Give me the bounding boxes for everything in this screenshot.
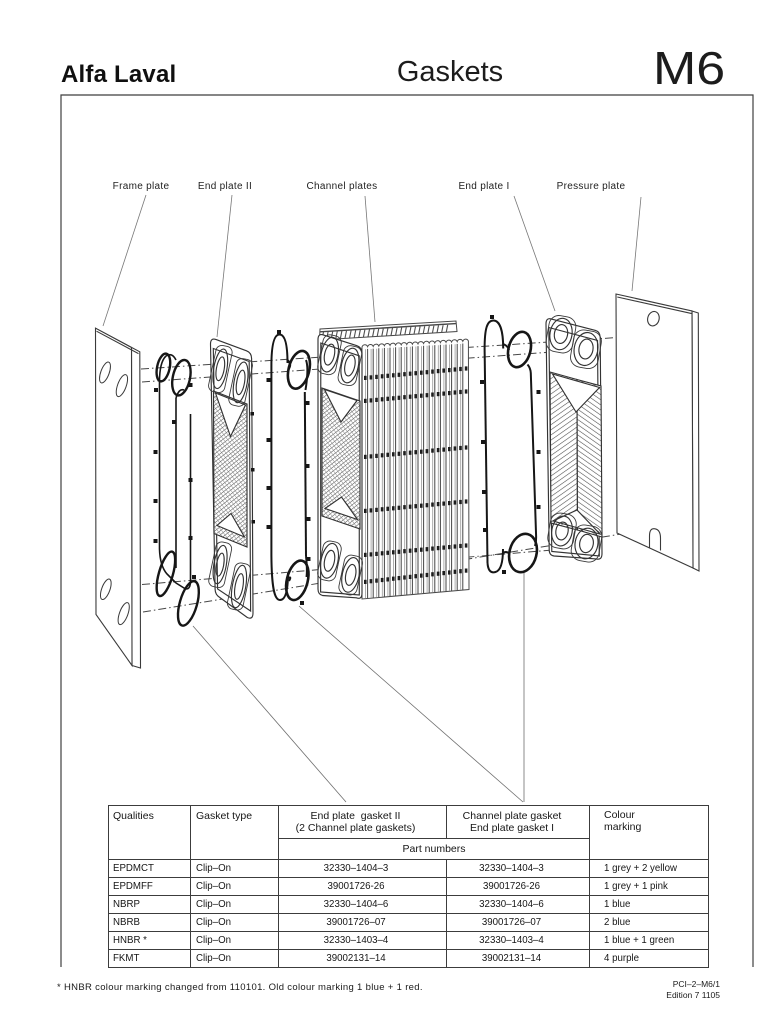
svg-text:End plate I: End plate I [458, 181, 509, 192]
svg-text:Channel plates: Channel plates [307, 181, 378, 192]
svg-text:End plate II: End plate II [198, 181, 252, 192]
svg-text:Frame plate: Frame plate [113, 181, 170, 192]
svg-text:Pressure plate: Pressure plate [557, 181, 626, 192]
